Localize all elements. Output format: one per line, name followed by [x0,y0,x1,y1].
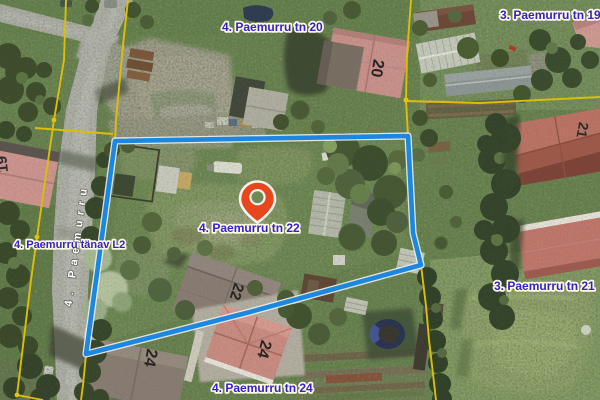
svg-text:3. Paemurru tn 21: 3. Paemurru tn 21 [494,279,595,293]
svg-text:4. Paemurru tn 22: 4. Paemurru tn 22 [199,221,300,235]
svg-text:4. Paemurru tn 24: 4. Paemurru tn 24 [212,381,313,395]
svg-text:4. Paemurru tn 20: 4. Paemurru tn 20 [222,20,323,34]
svg-text:3. Paemurru tn 19: 3. Paemurru tn 19 [500,8,600,22]
